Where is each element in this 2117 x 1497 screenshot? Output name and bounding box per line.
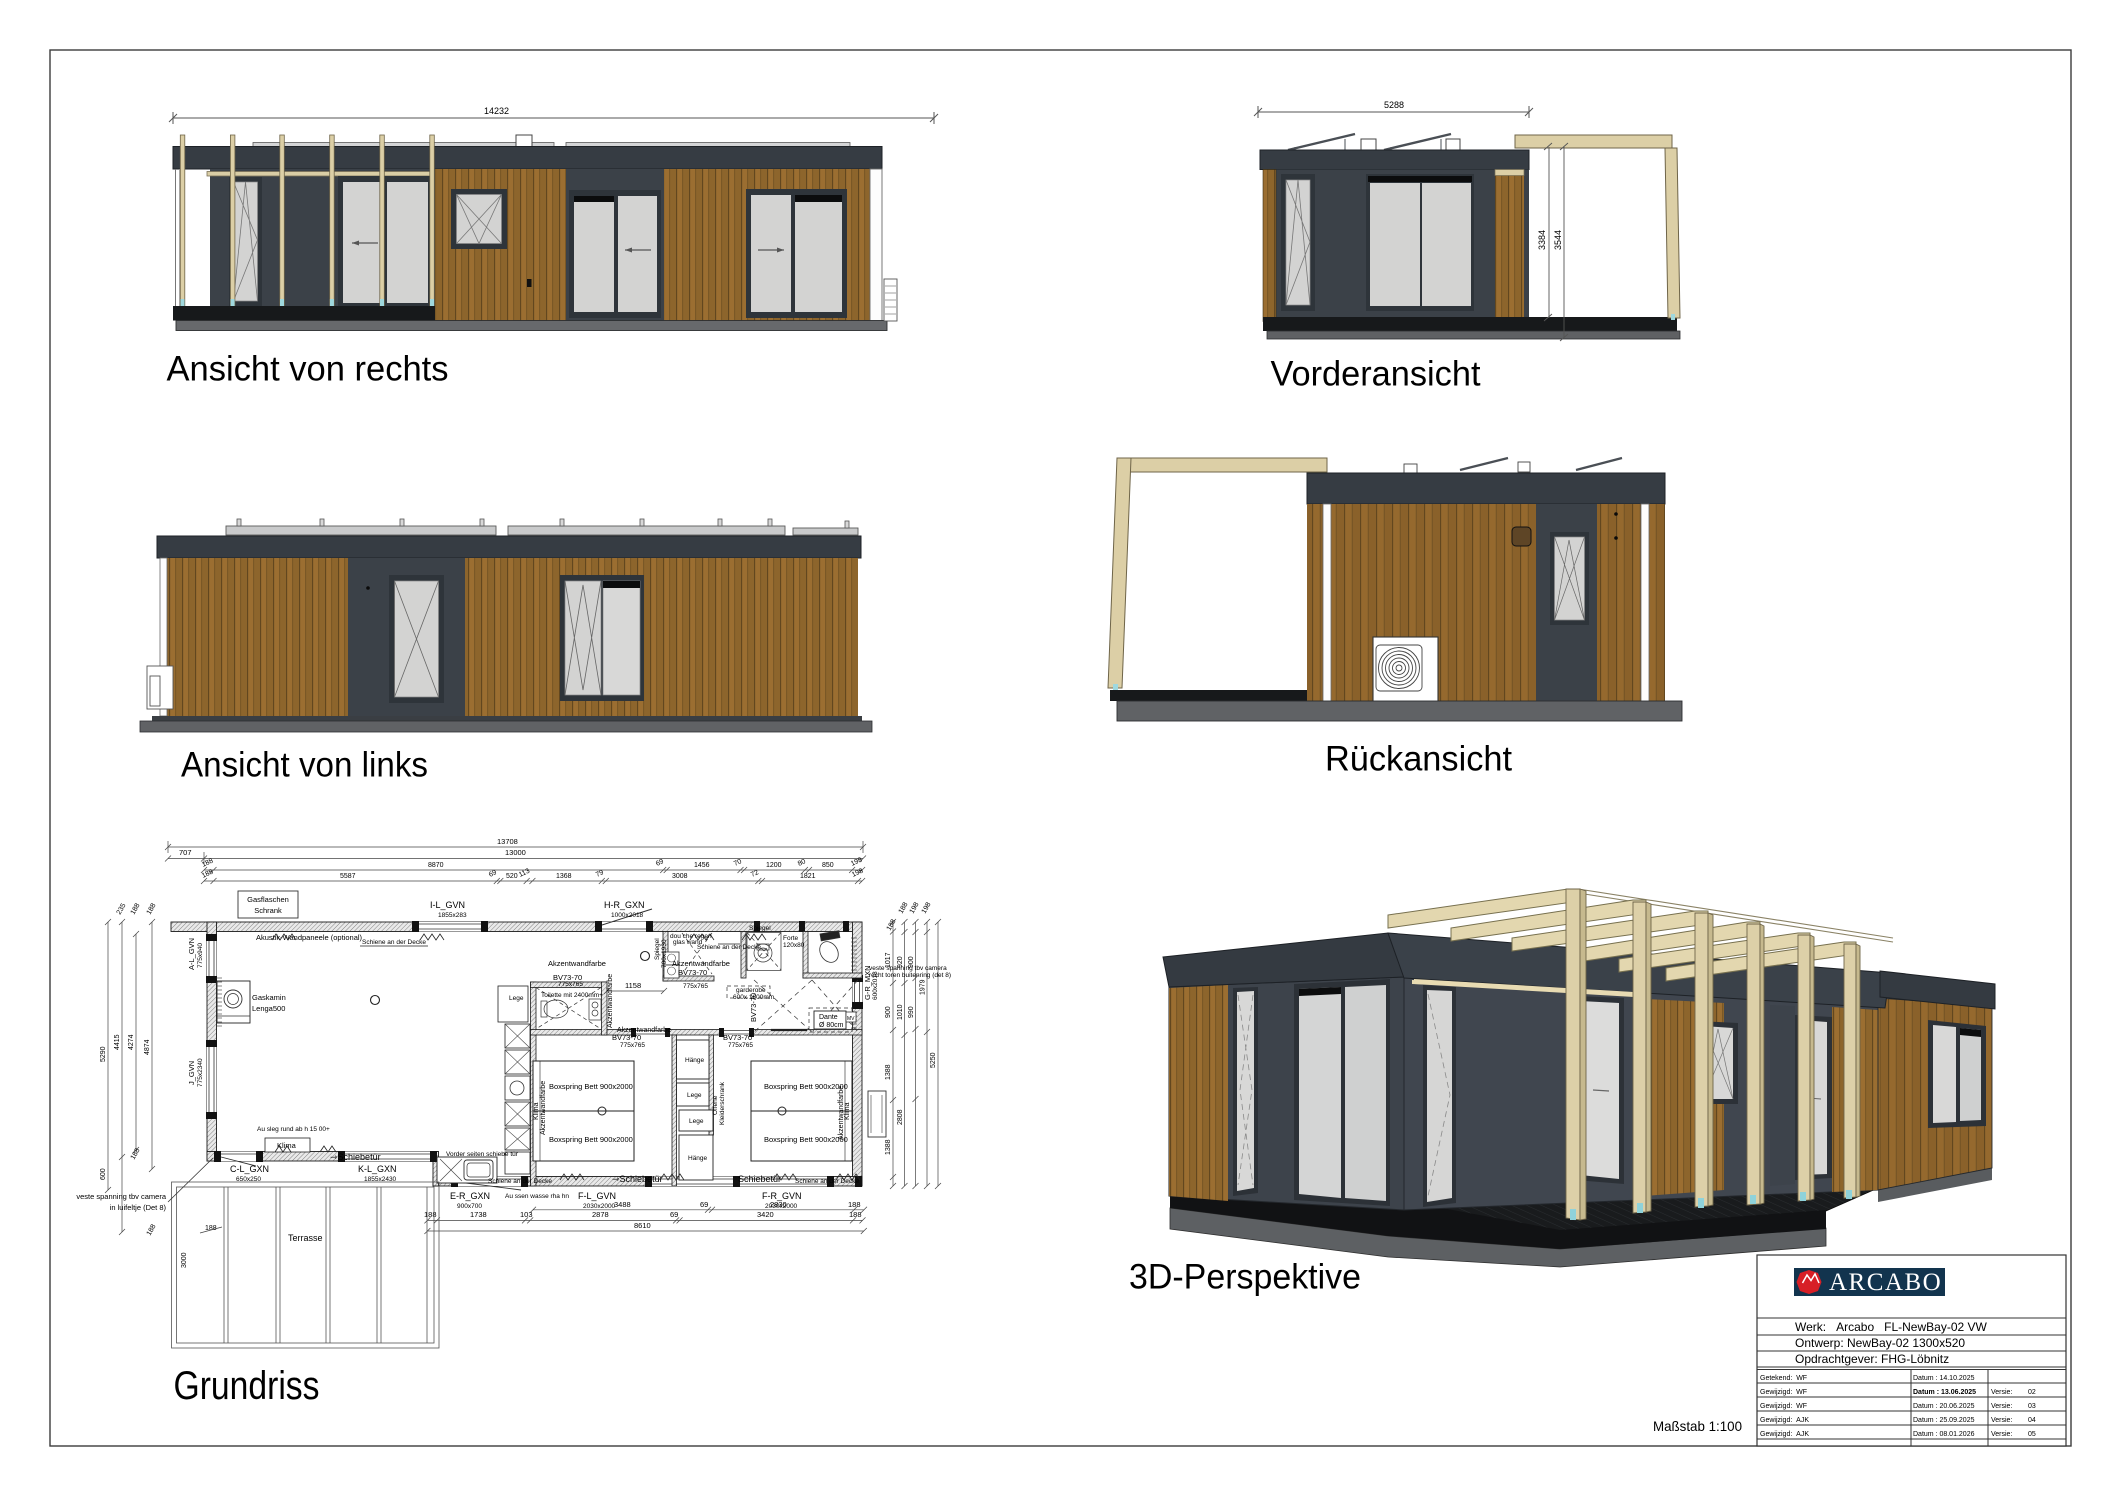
svg-text:2878: 2878: [592, 1210, 609, 1219]
svg-text:H-R_GXN: H-R_GXN: [604, 900, 645, 910]
svg-text:Klima: Klima: [533, 1102, 540, 1120]
svg-text:recht toren buitenring (det 8): recht toren buitenring (det 8): [869, 972, 951, 979]
svg-text:775x940: 775x940: [197, 943, 204, 968]
svg-text:8870: 8870: [428, 862, 444, 869]
svg-text:Boxspring Bett 900x2000: Boxspring Bett 900x2000: [549, 1082, 633, 1091]
svg-text:13708: 13708: [497, 837, 518, 846]
svg-text:4415: 4415: [114, 1034, 121, 1050]
svg-text:Versie:: Versie:: [1991, 1417, 2012, 1424]
svg-text:Kleiderschrank: Kleiderschrank: [719, 1081, 726, 1125]
svg-text:1738: 1738: [470, 1210, 487, 1219]
svg-text:3008: 3008: [672, 873, 688, 880]
svg-text:Grundriss: Grundriss: [174, 1364, 320, 1408]
svg-text:4274: 4274: [128, 1034, 135, 1050]
svg-text:Ansicht von rechts: Ansicht von rechts: [167, 350, 449, 389]
svg-text:775x765: 775x765: [728, 1042, 753, 1049]
svg-text:Forte: Forte: [783, 935, 799, 942]
svg-text:Datum : 25.09.2025: Datum : 25.09.2025: [1913, 1417, 1975, 1424]
svg-text:Schiene an der Decke: Schiene an der Decke: [697, 944, 761, 951]
svg-text:Schrank: Schrank: [254, 906, 282, 915]
svg-text:Boxspring Bett 900x2000: Boxspring Bett 900x2000: [549, 1135, 633, 1144]
svg-text:13000: 13000: [505, 848, 526, 857]
svg-text:Schiene an der Decke: Schiene an der Decke: [362, 939, 426, 946]
svg-text:Versie:: Versie:: [1991, 1431, 2012, 1438]
svg-text:BV73-70: BV73-70: [749, 993, 758, 1022]
svg-text:188: 188: [849, 1210, 862, 1219]
svg-text:775x765: 775x765: [558, 981, 583, 988]
svg-text:600x2018: 600x2018: [872, 971, 879, 1000]
svg-text:Versie:: Versie:: [1991, 1389, 2012, 1396]
svg-text:Schiebetür: Schiebetür: [738, 1174, 781, 1184]
svg-text:Gewijzigd: WF: Gewijzigd: WF: [1760, 1403, 1807, 1410]
svg-text:188: 188: [424, 1210, 437, 1219]
svg-text:Gewijzigd: AJK: Gewijzigd: AJK: [1760, 1431, 1809, 1438]
svg-text:Lenga500: Lenga500: [252, 1004, 285, 1013]
svg-text:Gewijzigd: AJK: Gewijzigd: AJK: [1760, 1417, 1809, 1424]
svg-text:1821: 1821: [800, 873, 816, 880]
svg-text:A-L_GVN: A-L_GVN: [187, 938, 196, 970]
svg-text:glas wand: glas wand: [673, 939, 703, 946]
svg-text:Werk: Arcabo FL-NewBay-02: Werk: Arcabo FL-NewBay-02 VW: [1795, 1320, 1988, 1334]
svg-text:J_GVN: J_GVN: [187, 1061, 196, 1085]
svg-text:5587: 5587: [340, 873, 356, 880]
svg-text:103: 103: [520, 1210, 533, 1219]
svg-text:Datum : 13.06.2025: Datum : 13.06.2025: [1913, 1389, 1976, 1396]
svg-text:Boxspring Bett 900x2000: Boxspring Bett 900x2000: [764, 1082, 848, 1091]
svg-text:Akzentwandfarbe: Akzentwandfarbe: [540, 1081, 547, 1135]
svg-text:Rückansicht: Rückansicht: [1325, 740, 1512, 779]
svg-text:850: 850: [822, 862, 834, 869]
svg-text:Datum : 14.10.2025: Datum : 14.10.2025: [1913, 1375, 1975, 1382]
svg-text:Au sleg rund ab h 15 00+: Au sleg rund ab h 15 00+: [257, 1126, 330, 1133]
svg-text:2830: 2830: [770, 1200, 787, 1209]
svg-text:5290: 5290: [100, 1046, 107, 1062]
svg-text:ARCABO: ARCABO: [1829, 1269, 1942, 1296]
svg-text:3000: 3000: [181, 1252, 188, 1268]
svg-text:3488: 3488: [614, 1200, 631, 1209]
svg-text:Maßstab 1:100: Maßstab 1:100: [1653, 1418, 1742, 1434]
svg-text:in luifeltje (Det 8): in luifeltje (Det 8): [110, 1203, 167, 1212]
svg-text:Gasflaschen: Gasflaschen: [247, 895, 289, 904]
svg-text:1200: 1200: [766, 862, 782, 869]
svg-text:Boxspring Bett 900x2000: Boxspring Bett 900x2000: [764, 1135, 848, 1144]
svg-text:990: 990: [908, 1006, 915, 1018]
svg-text:3544: 3544: [1553, 230, 1563, 250]
svg-text:Akzentwandfarbe: Akzentwandfarbe: [617, 1027, 671, 1034]
svg-text:120x80: 120x80: [783, 942, 805, 949]
svg-text:Ontwerp: NewBay-02 1300x520: Ontwerp: NewBay-02 1300x520: [1795, 1336, 1965, 1350]
svg-text:Lege: Lege: [509, 995, 524, 1002]
svg-text:Versie:: Versie:: [1991, 1403, 2012, 1410]
svg-text:Vorderansicht: Vorderansicht: [1271, 355, 1481, 394]
svg-text:C-L_GXN: C-L_GXN: [230, 1164, 269, 1174]
svg-text:Datum : 20.06.2025: Datum : 20.06.2025: [1913, 1403, 1975, 1410]
svg-text:Offene: Offene: [712, 1095, 719, 1115]
svg-text:700x1930: 700x1930: [661, 939, 668, 968]
svg-text:2030x2000: 2030x2000: [583, 1203, 616, 1210]
svg-text:Gewijzigd: WF: Gewijzigd: WF: [1760, 1389, 1807, 1396]
svg-text:600: 600: [100, 1168, 107, 1180]
svg-text:5250: 5250: [930, 1052, 937, 1068]
svg-text:4874: 4874: [144, 1039, 151, 1055]
svg-text:Dante: Dante: [819, 1014, 838, 1021]
svg-text:775x2340: 775x2340: [197, 1058, 204, 1087]
svg-text:K-L_GXN: K-L_GXN: [358, 1164, 397, 1174]
svg-text:775x765: 775x765: [683, 983, 708, 990]
svg-text:69: 69: [670, 1210, 678, 1219]
svg-text:1000x2018: 1000x2018: [611, 912, 644, 919]
svg-text:3384: 3384: [1537, 230, 1547, 250]
svg-text:Lege: Lege: [687, 1092, 702, 1099]
svg-text:G-R_MXN: G-R_MXN: [863, 965, 872, 1000]
svg-text:Ansicht von links: Ansicht von links: [181, 746, 428, 785]
svg-text:900: 900: [885, 1006, 892, 1018]
svg-text:1456: 1456: [694, 862, 710, 869]
svg-text:Schiene an der Decke: Schiene an der Decke: [488, 1178, 552, 1185]
svg-text:BV73-70: BV73-70: [723, 1033, 752, 1042]
svg-text:Akzentwandfarbe: Akzentwandfarbe: [548, 959, 606, 968]
svg-text:1368: 1368: [556, 873, 572, 880]
svg-text:veste spanning tbv camera: veste spanning tbv camera: [76, 1192, 166, 1201]
svg-text:707: 707: [179, 848, 192, 857]
svg-text:E-R_GXN: E-R_GXN: [450, 1191, 490, 1201]
svg-text:1979: 1979: [920, 979, 927, 995]
svg-text:Getekend: WF: Getekend: WF: [1760, 1375, 1807, 1382]
svg-text:1855x283: 1855x283: [438, 912, 467, 919]
svg-text:Lege: Lege: [689, 1118, 704, 1125]
svg-text:Toilette mit 2400mm+: Toilette mit 2400mm+: [541, 992, 603, 999]
svg-text:3D-Perspektive: 3D-Perspektive: [1129, 1257, 1361, 1297]
svg-text:04: 04: [2028, 1417, 2036, 1424]
svg-text:veste spanning tbv camera: veste spanning tbv camera: [869, 965, 947, 972]
svg-text:02: 02: [2028, 1389, 2036, 1396]
svg-text:Hänge: Hänge: [688, 1155, 708, 1162]
svg-text:05: 05: [2028, 1431, 2036, 1438]
svg-text:8610: 8610: [634, 1221, 651, 1230]
svg-text:775x765: 775x765: [620, 1042, 645, 1049]
svg-text:Schiene an der Decke: Schiene an der Decke: [795, 1178, 859, 1185]
svg-text:Spiegel: Spiegel: [654, 938, 661, 960]
svg-text:⇾Schiebetür: ⇾Schiebetür: [330, 1152, 381, 1162]
svg-text:2808: 2808: [897, 1109, 904, 1125]
svg-text:Terrasse: Terrasse: [288, 1233, 323, 1243]
svg-text:Datum : 08.01.2026: Datum : 08.01.2026: [1913, 1431, 1975, 1438]
svg-text:69: 69: [700, 1200, 708, 1209]
svg-text:⇾Schiebetür: ⇾Schiebetür: [612, 1174, 663, 1184]
svg-text:1158: 1158: [625, 981, 641, 990]
svg-text:1388: 1388: [885, 1064, 892, 1080]
svg-text:Gaskamin: Gaskamin: [252, 993, 286, 1002]
svg-text:3420: 3420: [757, 1210, 774, 1219]
svg-text:Klima: Klima: [277, 1141, 297, 1150]
svg-text:BV73-70: BV73-70: [612, 1033, 641, 1042]
svg-text:900x700: 900x700: [457, 1203, 482, 1210]
svg-text:520: 520: [506, 873, 518, 880]
svg-text:Akustik-Wandpaneele (optional): Akustik-Wandpaneele (optional): [256, 933, 363, 942]
svg-text:Hänge: Hänge: [685, 1057, 705, 1064]
svg-text:I-L_GVN: I-L_GVN: [430, 900, 465, 910]
svg-text:Opdrachtgever: FHG-Löbnitz: Opdrachtgever: FHG-Löbnitz: [1795, 1352, 1949, 1366]
svg-text:Klima: Klima: [844, 1102, 851, 1120]
svg-text:Akzentwandfarbe: Akzentwandfarbe: [672, 959, 730, 968]
svg-text:Au ssen wasse rha hn: Au ssen wasse rha hn: [505, 1193, 569, 1200]
svg-text:Ø 80cm: Ø 80cm: [819, 1022, 844, 1029]
svg-text:Vorder seiten schiebe tür: Vorder seiten schiebe tür: [446, 1151, 519, 1158]
svg-text:Spiegel: Spiegel: [749, 925, 771, 932]
svg-text:5288: 5288: [1384, 100, 1404, 110]
svg-text:1388: 1388: [885, 1139, 892, 1155]
svg-text:14232: 14232: [484, 106, 509, 116]
svg-text:F-L_GVN: F-L_GVN: [578, 1191, 616, 1201]
svg-text:03: 03: [2028, 1403, 2036, 1410]
svg-text:MV: MV: [847, 1016, 855, 1022]
svg-text:Akzentwandfarbe: Akzentwandfarbe: [607, 974, 614, 1028]
svg-text:188: 188: [848, 1200, 861, 1209]
svg-text:1010: 1010: [897, 1004, 904, 1020]
svg-text:BV73-70: BV73-70: [678, 968, 707, 977]
